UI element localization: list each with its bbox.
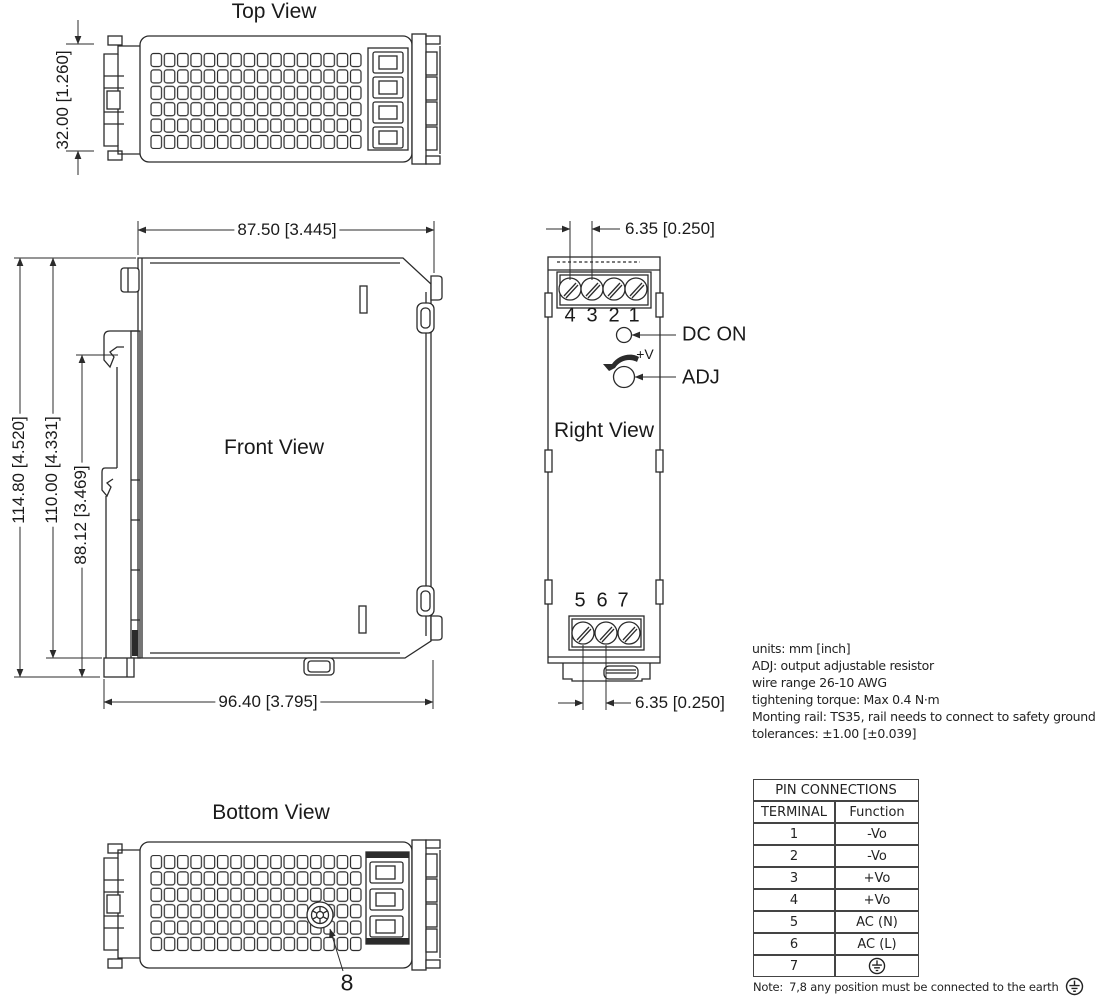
dim-front-height-clip: 88.12 [3.469]: [71, 462, 91, 567]
dim-front-height-body: 110.00 [4.331]: [42, 413, 62, 526]
note-line: Monting rail: TS35, rail needs to connec…: [752, 708, 1096, 725]
pin-table-title: PIN CONNECTIONS: [753, 779, 919, 801]
note-line: tightening torque: Max 0.4 N·m: [752, 691, 1096, 708]
note-line: tolerances: ±1.00 [±0.039]: [752, 725, 1096, 742]
note-line: ADJ: output adjustable resistor: [752, 657, 1096, 674]
top-view-title: Top View: [232, 0, 317, 24]
mechanical-drawing: [0, 0, 1100, 1000]
dim-front-height-total: 114.80 [4.520]: [9, 413, 29, 526]
terminal-label-4: 4: [564, 305, 575, 328]
adj-plus-v-label: +V: [636, 346, 654, 362]
front-view-title: Front View: [224, 436, 324, 460]
pin-row: 1-Vo: [753, 823, 919, 845]
adj-potentiometer: [614, 367, 635, 388]
ground-screw-callout: 8: [341, 970, 354, 997]
pin-table-header-function: Function: [835, 801, 919, 823]
datasheet-page: Top View 32.00 [1.260] 87.50 [3.445] 114…: [0, 0, 1100, 1000]
terminal-label-7: 7: [617, 590, 628, 613]
earth-ground-icon: [1065, 977, 1084, 996]
terminal-label-3: 3: [586, 305, 597, 328]
pin-table-header-terminal: TERMINAL: [753, 801, 835, 823]
note-prefix: Note:: [753, 980, 783, 994]
right-view-title: Right View: [554, 419, 654, 443]
terminal-label-5: 5: [574, 590, 585, 613]
dc-on-led: [617, 328, 632, 343]
dim-top-clip-height: 32.00 [1.260]: [53, 50, 73, 149]
bottom-view-title: Bottom View: [212, 801, 330, 825]
pin-table-note: Note: 7,8 any position must be connected…: [753, 977, 1084, 996]
terminal-label-6: 6: [596, 590, 607, 613]
terminal-label-1: 1: [628, 305, 639, 328]
dim-front-width-top: 87.50 [3.445]: [234, 220, 339, 240]
pin-row: 3+Vo: [753, 867, 919, 889]
ground-screw: [307, 902, 333, 928]
pin-row: 7: [753, 955, 919, 977]
terminal-label-2: 2: [608, 305, 619, 328]
dim-terminal-pitch-top: 6.35 [0.250]: [625, 219, 715, 239]
pin-row: 2-Vo: [753, 845, 919, 867]
pin-row: 4+Vo: [753, 889, 919, 911]
dim-front-width-bottom: 96.40 [3.795]: [215, 692, 320, 712]
note-line: units: mm [inch]: [752, 640, 1096, 657]
pin-connections-table: PIN CONNECTIONS TERMINAL Function 1-Vo 2…: [753, 779, 919, 977]
bottom-view-drawing: [104, 840, 440, 971]
right-view-drawing: [545, 221, 676, 710]
adj-label: ADJ: [682, 367, 720, 390]
note-line: wire range 26-10 AWG: [752, 674, 1096, 691]
notes-block: units: mm [inch] ADJ: output adjustable …: [752, 640, 1096, 742]
bottom-terminal-screws: [572, 622, 640, 644]
note-text: 7,8 any position must be connected to th…: [789, 980, 1058, 994]
dc-on-label: DC ON: [682, 324, 746, 347]
pin-row: 6AC (L): [753, 933, 919, 955]
pin-row: 5AC (N): [753, 911, 919, 933]
earth-ground-icon: [868, 957, 886, 975]
dim-terminal-pitch-bottom: 6.35 [0.250]: [635, 693, 725, 713]
